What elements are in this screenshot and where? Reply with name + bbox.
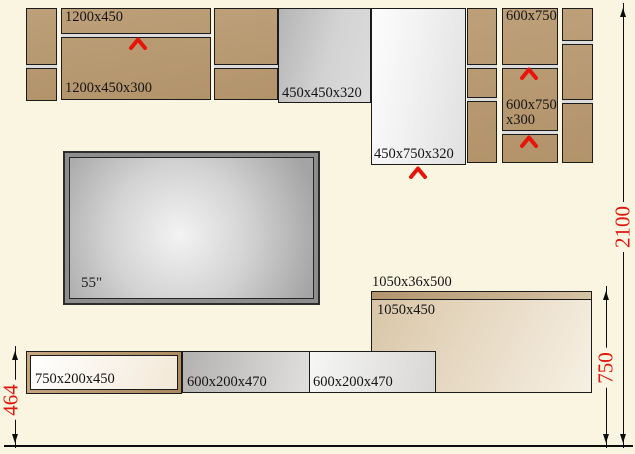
cabinet-label: 450x450x320	[282, 86, 362, 101]
shelf-divider	[562, 40, 593, 45]
cabinet-label: 750x200x450	[35, 372, 115, 387]
countertop-label: 1050x36x500	[372, 275, 452, 290]
cabinet-label: 600x750	[506, 9, 557, 24]
tv-screen: 55"	[69, 157, 314, 299]
tall-cabinet-600[interactable]: 600x750 600x750 x300	[502, 8, 558, 163]
tall-cabinet-column-left[interactable]	[467, 8, 497, 163]
dimension-750: 750	[599, 286, 613, 448]
tall-cabinet-column-right[interactable]	[562, 8, 593, 163]
base-shelf-600-left[interactable]: 600x200x470	[182, 351, 310, 393]
cabinet-label: 600x200x470	[313, 375, 393, 390]
floor-line	[4, 445, 633, 447]
dimension-value: 750	[594, 348, 619, 388]
arrow-up-icon	[620, 8, 626, 17]
door-open-direction-icon	[408, 166, 428, 179]
dimension-value: 464	[0, 380, 24, 420]
cabinet-label: 450x750x320	[374, 147, 454, 162]
cabinet-label: 600x750	[506, 98, 557, 113]
base-shelf-750[interactable]: 750x200x450	[26, 351, 182, 394]
design-canvas: 1200x450 1200x450x300 450x450x320 450x75…	[0, 0, 635, 454]
shelf-divider	[214, 64, 278, 69]
shelf-divider	[562, 99, 593, 104]
wall-cabinet-narrow-mid[interactable]	[214, 8, 278, 100]
shelf-divider	[467, 97, 497, 102]
shelf-divider	[467, 64, 497, 69]
base-shelf-600-right[interactable]: 600x200x470	[309, 351, 436, 393]
cabinet-label: 600x200x470	[187, 375, 267, 390]
arrow-down-icon	[603, 434, 609, 443]
dimension-464: 464	[8, 346, 22, 448]
wall-cabinet-450x450[interactable]: 450x450x320	[278, 8, 371, 103]
cabinet-label: 1050x450	[377, 303, 435, 318]
arrow-down-icon	[12, 434, 18, 443]
arrow-up-icon	[603, 291, 609, 300]
dimension-value: 2100	[611, 202, 635, 252]
door-open-direction-icon	[128, 37, 148, 50]
tv-55[interactable]: 55"	[63, 151, 320, 305]
door-open-direction-icon	[519, 67, 539, 80]
tv-size-label: 55"	[81, 275, 102, 292]
cabinet-label: 1200x450	[65, 10, 123, 25]
countertop-1050[interactable]	[371, 291, 592, 300]
dimension-2100: 2100	[616, 3, 630, 448]
cabinet-label: 1200x450x300	[65, 81, 152, 96]
wall-cabinet-450x750[interactable]: 450x750x320	[371, 8, 466, 165]
arrow-down-icon	[620, 434, 626, 443]
door-open-direction-icon	[519, 135, 539, 148]
base-shelf-750-panel: 750x200x450	[30, 355, 178, 390]
shelf-divider	[26, 64, 57, 69]
cabinet-label: x300	[506, 113, 535, 128]
arrow-up-icon	[12, 351, 18, 360]
wall-cabinet-1200[interactable]: 1200x450 1200x450x300	[61, 8, 211, 100]
wall-cabinet-narrow-left[interactable]	[26, 8, 57, 101]
